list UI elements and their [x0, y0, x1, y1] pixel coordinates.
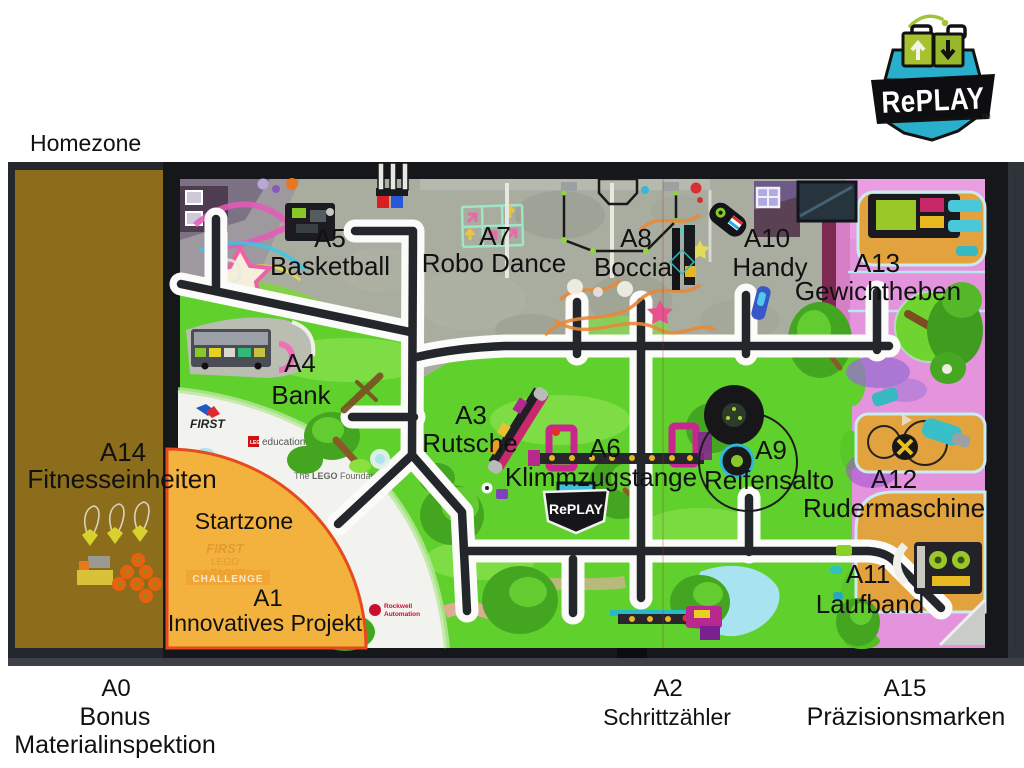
svg-text:Gewichtheben: Gewichtheben	[795, 276, 961, 306]
svg-text:A9: A9	[755, 435, 787, 465]
svg-text:Materialinspektion: Materialinspektion	[14, 731, 216, 759]
svg-text:Fitnesseinheiten: Fitnesseinheiten	[27, 464, 216, 494]
svg-text:FIRST: FIRST	[190, 417, 226, 431]
svg-text:A4: A4	[284, 348, 316, 378]
svg-text:A0: A0	[101, 675, 130, 702]
svg-text:Rockwell: Rockwell	[384, 603, 412, 610]
svg-text:Reifensalto: Reifensalto	[704, 465, 834, 495]
svg-text:FIRST: FIRST	[206, 541, 245, 556]
svg-text:Innovatives Projekt: Innovatives Projekt	[168, 610, 363, 636]
svg-text:A12: A12	[871, 464, 917, 494]
svg-text:Schrittzähler: Schrittzähler	[603, 704, 731, 730]
svg-text:A8: A8	[620, 223, 652, 253]
svg-text:RePLAY: RePLAY	[549, 501, 604, 517]
svg-text:Homezone: Homezone	[30, 130, 141, 156]
svg-text:education: education	[262, 437, 305, 448]
svg-text:LEGO: LEGO	[211, 557, 239, 568]
svg-text:A2: A2	[653, 675, 682, 702]
svg-text:Bank: Bank	[271, 380, 331, 410]
svg-text:RePLAY: RePLAY	[881, 81, 986, 120]
svg-text:A5: A5	[314, 223, 346, 253]
svg-text:Rutsche: Rutsche	[422, 428, 517, 458]
svg-text:A14: A14	[100, 437, 146, 467]
svg-text:Präzisionsmarken: Präzisionsmarken	[807, 703, 1006, 731]
svg-text:A10: A10	[744, 223, 790, 253]
svg-text:A11: A11	[846, 559, 890, 589]
svg-text:Startzone: Startzone	[195, 508, 293, 534]
svg-text:Basketball: Basketball	[270, 251, 390, 281]
svg-text:CHALLENGE: CHALLENGE	[192, 574, 263, 585]
svg-text:A7: A7	[479, 221, 511, 251]
svg-text:Rudermaschine: Rudermaschine	[803, 493, 985, 523]
svg-text:Bonus: Bonus	[80, 703, 151, 731]
svg-text:TM: TM	[982, 115, 991, 121]
svg-text:Robo Dance: Robo Dance	[422, 248, 567, 278]
svg-text:A6: A6	[589, 433, 621, 463]
svg-text:Automation: Automation	[384, 611, 420, 618]
svg-text:A13: A13	[854, 248, 900, 278]
svg-text:Laufband: Laufband	[816, 589, 924, 619]
svg-text:A3: A3	[455, 400, 487, 430]
svg-text:Boccia: Boccia	[594, 252, 673, 282]
svg-text:A1: A1	[253, 585, 282, 612]
svg-text:Klimmzugstange: Klimmzugstange	[505, 462, 697, 492]
svg-text:A15: A15	[884, 675, 927, 702]
